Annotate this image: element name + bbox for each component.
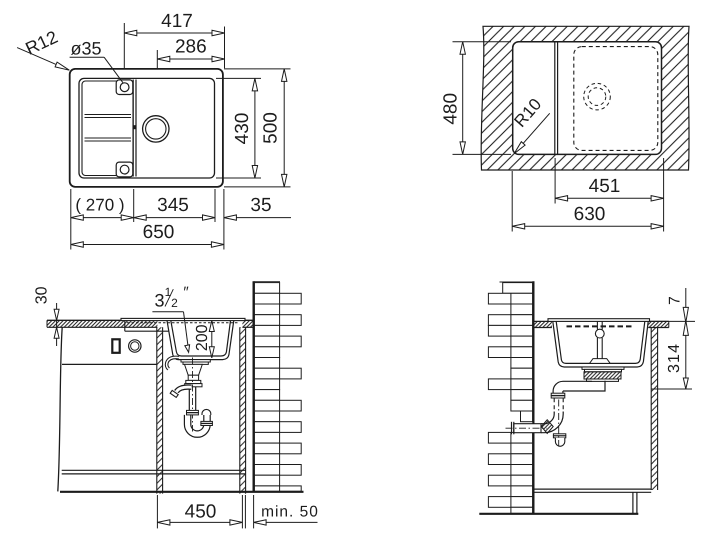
svg-text:″: ″ [183,284,189,301]
svg-text:286: 286 [175,37,207,58]
svg-text:min. 50: min. 50 [261,504,319,521]
svg-text:500: 500 [261,112,282,144]
svg-text:314: 314 [666,343,683,373]
svg-text:451: 451 [589,176,621,197]
svg-text:35: 35 [250,195,271,216]
svg-text:2: 2 [171,296,178,310]
svg-text:30: 30 [34,286,51,304]
svg-text:200: 200 [194,324,211,351]
svg-text:( 270 ): ( 270 ) [75,195,124,214]
svg-text:480: 480 [441,93,462,125]
svg-text:430: 430 [232,113,253,145]
svg-text:3: 3 [154,290,164,310]
svg-text:650: 650 [143,222,175,243]
svg-text:ø35: ø35 [70,39,101,59]
svg-text:417: 417 [161,11,193,32]
svg-text:630: 630 [574,204,606,225]
svg-text:450: 450 [185,502,217,523]
svg-text:345: 345 [157,195,189,216]
svg-text:7: 7 [666,296,683,305]
